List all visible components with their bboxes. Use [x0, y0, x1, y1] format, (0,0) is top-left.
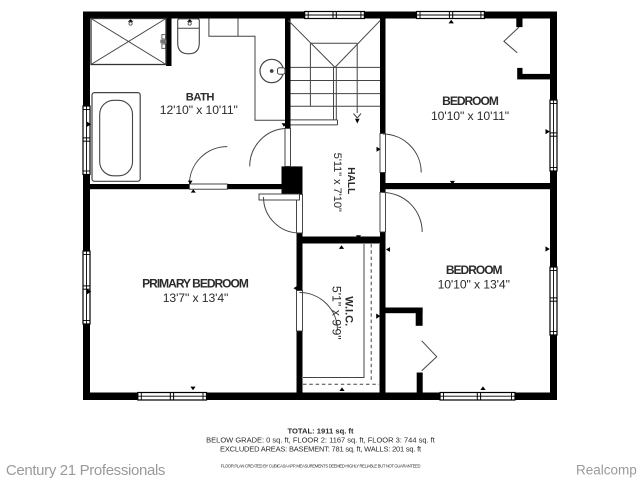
- svg-text:5'11" x 7'10": 5'11" x 7'10": [331, 153, 343, 212]
- svg-text:BELOW GRADE: 0 sq. ft, FLOOR 2: BELOW GRADE: 0 sq. ft, FLOOR 2: 1167 sq.…: [206, 435, 436, 444]
- svg-text:Realcomp: Realcomp: [576, 463, 637, 478]
- svg-text:10'10" x 10'11": 10'10" x 10'11": [431, 109, 509, 123]
- svg-text:5'1" x 9'9": 5'1" x 9'9": [330, 286, 344, 340]
- svg-text:BEDROOM: BEDROOM: [446, 263, 503, 277]
- svg-text:TOTAL: 1911 sq. ft: TOTAL: 1911 sq. ft: [288, 426, 354, 435]
- svg-text:10'10" x 13'4": 10'10" x 13'4": [438, 277, 510, 291]
- svg-text:FLOOR PLAN CREATED BY CUBICASA: FLOOR PLAN CREATED BY CUBICASA APP. MEAS…: [221, 463, 421, 468]
- svg-text:EXCLUDED AREAS: BASEMENT: 781: EXCLUDED AREAS: BASEMENT: 781 sq. ft, WA…: [220, 444, 422, 453]
- svg-text:BEDROOM: BEDROOM: [442, 94, 499, 108]
- svg-text:HALL: HALL: [345, 167, 356, 194]
- svg-text:12'10" x 10'11": 12'10" x 10'11": [160, 103, 238, 117]
- svg-text:Century 21 Professionals: Century 21 Professionals: [6, 462, 165, 479]
- svg-text:PRIMARY BEDROOM: PRIMARY BEDROOM: [142, 277, 249, 291]
- svg-text:BATH: BATH: [186, 92, 215, 104]
- svg-text:13'7" x 13'4": 13'7" x 13'4": [163, 291, 229, 305]
